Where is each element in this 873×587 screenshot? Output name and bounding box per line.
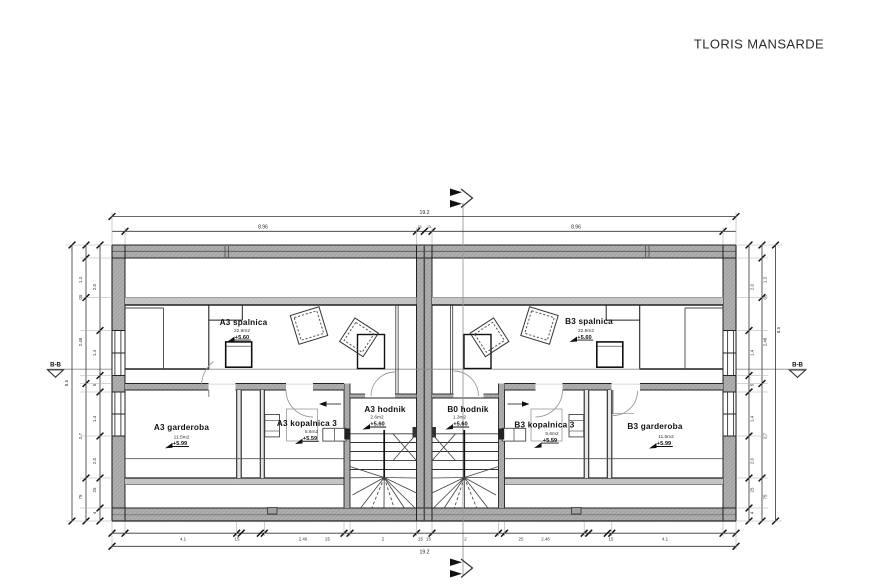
svg-text:A3 spalnica: A3 spalnica: [220, 318, 268, 327]
svg-text:B3 garderoba: B3 garderoba: [627, 422, 682, 431]
svg-text:1.3m2: 1.3m2: [453, 415, 467, 421]
svg-text:B3 kopalnica 3: B3 kopalnica 3: [514, 421, 574, 430]
svg-text:8.96: 8.96: [258, 225, 268, 231]
svg-text:15: 15: [609, 536, 614, 541]
svg-text:11.5m2: 11.5m2: [174, 434, 190, 440]
svg-text:8.5: 8.5: [64, 379, 69, 386]
svg-text:22.9m2: 22.9m2: [578, 328, 594, 334]
svg-text:A3 garderoba: A3 garderoba: [154, 423, 209, 432]
svg-text:4.1: 4.1: [662, 536, 669, 541]
svg-text:15: 15: [426, 536, 431, 541]
svg-text:25: 25: [325, 536, 330, 541]
svg-text:4.1: 4.1: [180, 536, 187, 541]
svg-text:1.4: 1.4: [92, 349, 97, 356]
svg-text:A3 kopalnica 3: A3 kopalnica 3: [277, 419, 337, 428]
svg-text:15: 15: [427, 225, 431, 229]
svg-text:2.0: 2.0: [92, 283, 97, 290]
svg-text:75: 75: [763, 494, 768, 499]
svg-text:B-B: B-B: [792, 362, 803, 369]
svg-text:2.0: 2.0: [750, 283, 755, 290]
svg-text:2.0: 2.0: [92, 457, 97, 464]
svg-text:2.6m2: 2.6m2: [370, 415, 384, 421]
svg-text:1.4: 1.4: [92, 415, 97, 422]
svg-text:2.46: 2.46: [299, 536, 308, 541]
svg-text:25: 25: [92, 487, 97, 492]
svg-text:2.46: 2.46: [541, 536, 550, 541]
svg-text:1.3: 1.3: [763, 276, 768, 283]
svg-text:8.5: 8.5: [776, 326, 781, 333]
svg-text:A3 hodnik: A3 hodnik: [364, 405, 406, 414]
svg-text:2.48: 2.48: [78, 337, 83, 346]
svg-text:B-B: B-B: [50, 362, 61, 369]
svg-text:25: 25: [750, 487, 755, 492]
svg-text:05: 05: [78, 294, 83, 299]
svg-text:2.0: 2.0: [750, 457, 755, 464]
svg-text:B3 spalnica: B3 spalnica: [565, 317, 613, 326]
svg-text:8.96: 8.96: [571, 225, 581, 231]
svg-text:22.9m2: 22.9m2: [234, 328, 250, 334]
svg-text:B0 hodnik: B0 hodnik: [447, 405, 489, 414]
svg-text:19.2: 19.2: [419, 549, 429, 555]
svg-text:75: 75: [78, 494, 83, 499]
svg-text:1.4: 1.4: [750, 415, 755, 422]
svg-text:11.5m2: 11.5m2: [658, 434, 674, 440]
svg-text:15: 15: [418, 225, 422, 229]
svg-text:5.6m2: 5.6m2: [545, 431, 559, 437]
svg-text:TLORIS MANSARDE: TLORIS MANSARDE: [694, 37, 824, 52]
svg-text:15: 15: [418, 536, 423, 541]
svg-text:19.2: 19.2: [419, 210, 429, 216]
svg-text:05: 05: [763, 294, 768, 299]
svg-text:25: 25: [519, 536, 524, 541]
svg-text:1.3: 1.3: [78, 276, 83, 283]
svg-text:5.6m2: 5.6m2: [305, 429, 319, 435]
svg-text:2.48: 2.48: [763, 337, 768, 346]
svg-text:15: 15: [235, 536, 240, 541]
svg-text:1.4: 1.4: [750, 349, 755, 356]
